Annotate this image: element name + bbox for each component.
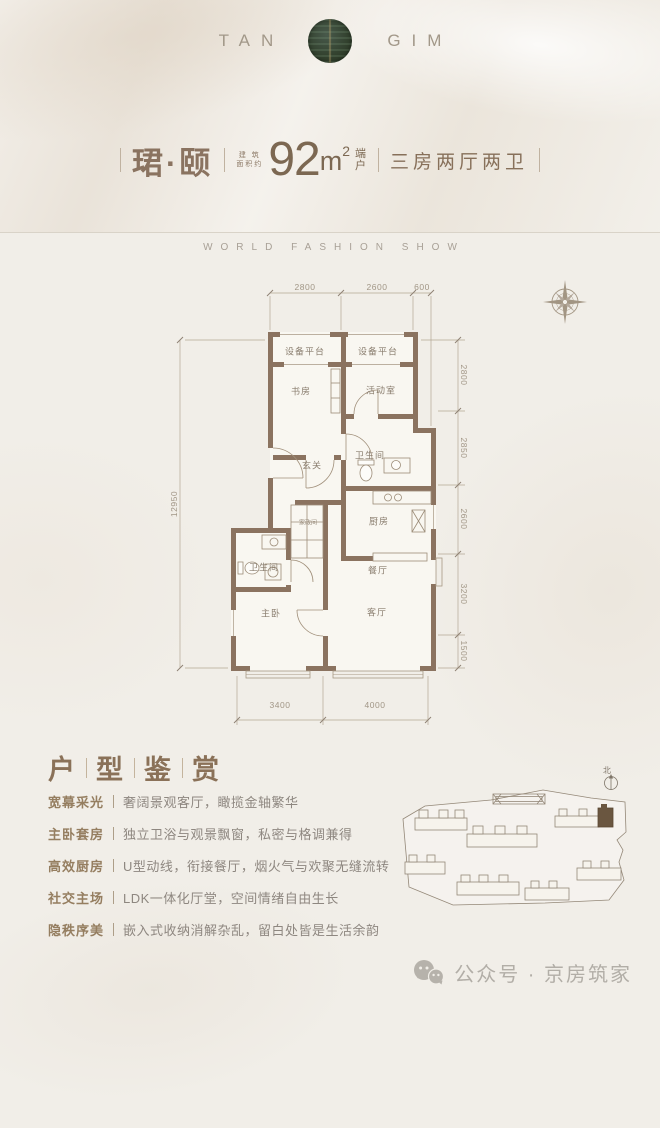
- horizontal-rule: [0, 232, 660, 233]
- dim-bottom-1: 3400: [270, 700, 291, 710]
- appreciation-item: 社交主场LDK一体化厅堂，空间情绪自由生长: [48, 888, 339, 907]
- appreciation-item: 主卧套房独立卫浴与观景飘窗，私密与格调兼得: [48, 824, 353, 843]
- watermark: 公众号 · 京房筑家: [412, 958, 632, 987]
- unit-name: 珺·颐: [132, 138, 213, 183]
- siteplan-north-icon: [605, 774, 618, 790]
- divider-bar: [182, 758, 183, 778]
- dim-bottom-2: 4000: [365, 700, 386, 710]
- tagline: WORLD FASHION SHOW: [0, 242, 660, 253]
- unit-position-label: 端 户: [355, 148, 367, 172]
- floorplan: [0, 270, 660, 745]
- brand-word-right: GIM: [376, 31, 452, 51]
- appreciation-item: 隐秩序美嵌入式收纳消解杂乱，留白处皆是生活余韵: [48, 920, 380, 939]
- divider-bar: [120, 148, 121, 172]
- divider-bar: [113, 827, 114, 840]
- divider-bar: [134, 758, 135, 778]
- room-label-utility: 家政间: [299, 518, 317, 527]
- divider-bar: [378, 148, 379, 172]
- compass-icon: [543, 280, 587, 324]
- divider-bar: [224, 148, 225, 172]
- dim-right-3: 2600: [459, 509, 469, 530]
- dim-right-1: 2800: [459, 365, 469, 386]
- area-prefix: 建 筑 面积约: [236, 151, 263, 169]
- dim-right-2: 2850: [459, 438, 469, 459]
- dim-top-1: 2800: [295, 282, 316, 292]
- siteplan: [395, 762, 630, 910]
- appreciation-item: 宽幕采光奢阔景观客厅，瞰揽金轴繁华: [48, 792, 299, 811]
- room-label-study: 书房: [291, 385, 311, 398]
- divider-bar: [86, 758, 87, 778]
- room-label-living: 客厅: [367, 606, 387, 619]
- appreciation-section: 户型鉴赏 宽幕采光奢阔景观客厅，瞰揽金轴繁华 主卧套房独立卫浴与观景飘窗，私密与…: [48, 748, 408, 787]
- divider-bar: [113, 859, 114, 872]
- appreciation-title: 户型鉴赏: [48, 748, 408, 787]
- wechat-icon: [412, 959, 445, 986]
- brand-emblem-icon: [308, 19, 352, 63]
- room-label-kitchen: 厨房: [369, 515, 389, 528]
- appreciation-item: 高效厨房U型动线，衔接餐厅，烟火气与欢聚无缝流转: [48, 856, 389, 875]
- room-label-bath-upper: 卫生间: [355, 449, 385, 462]
- divider-bar: [113, 795, 114, 808]
- room-label-dining: 餐厅: [368, 564, 388, 577]
- unit-spec: 三房两厅两卫: [390, 147, 528, 174]
- area-number: 92: [268, 140, 319, 180]
- brand-word-left: TAN: [208, 31, 285, 51]
- divider-bar: [539, 148, 540, 172]
- brand-logo: TAN GIM: [0, 18, 660, 64]
- dim-right-5: 1500: [459, 641, 469, 662]
- watermark-text: 公众号 · 京房筑家: [454, 958, 632, 987]
- area-unit: m2: [320, 143, 350, 177]
- room-label-bath-master: 卫生间: [249, 561, 279, 574]
- room-label-foyer: 玄关: [302, 459, 322, 472]
- dim-top-3: 600: [414, 282, 430, 292]
- unit-title-bar: 珺·颐 建 筑 面积约 92 m2 端 户 三房两厅两卫: [0, 136, 660, 184]
- room-label-platform-right: 设备平台: [358, 345, 398, 358]
- dim-left-1: 12950: [169, 491, 179, 517]
- room-label-master-bedroom: 主卧: [261, 607, 281, 620]
- dim-top-2: 2600: [367, 282, 388, 292]
- room-label-activity: 活动室: [366, 384, 396, 397]
- room-label-platform-left: 设备平台: [285, 345, 325, 358]
- divider-bar: [113, 891, 114, 904]
- siteplan-north-label: 北: [603, 765, 611, 776]
- dim-right-4: 3200: [459, 584, 469, 605]
- divider-bar: [113, 923, 114, 936]
